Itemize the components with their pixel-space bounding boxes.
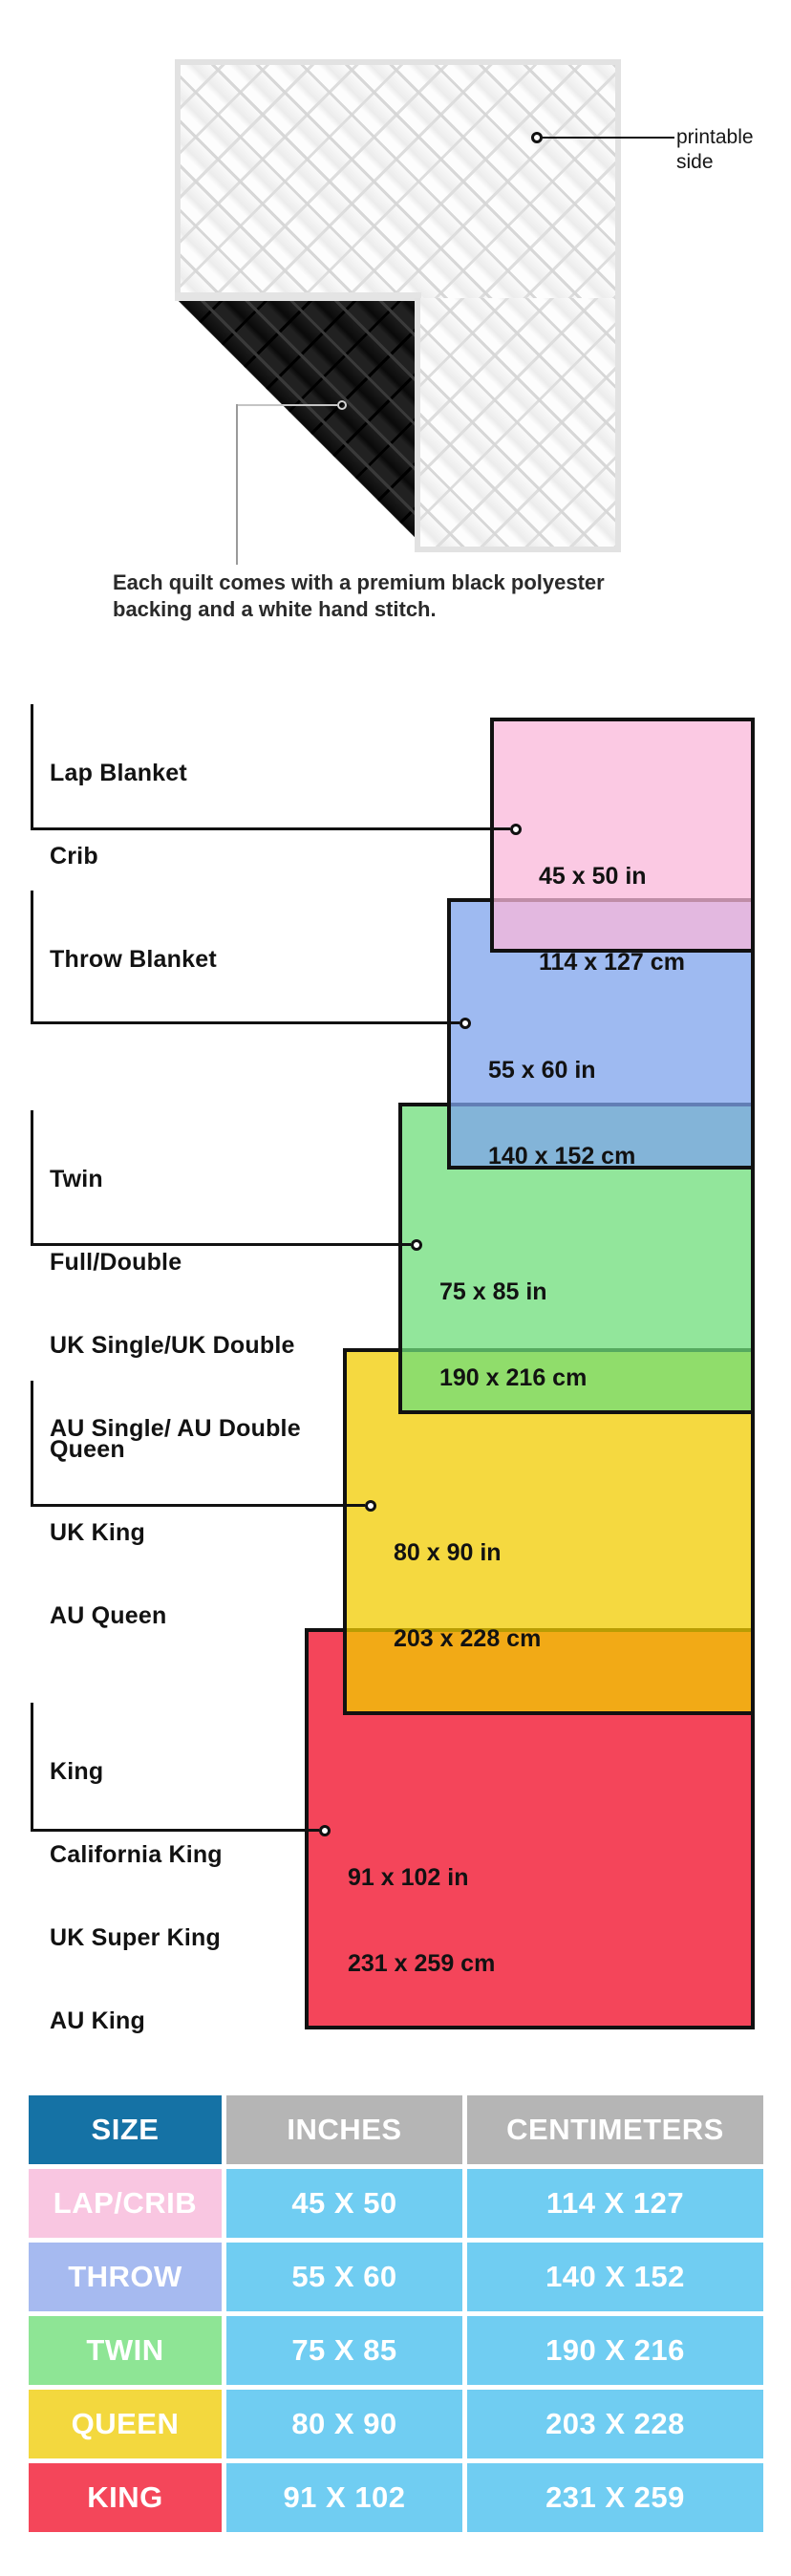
label-queen-line3: AU Queen bbox=[50, 1602, 166, 1630]
dims-king-cm: 231 x 259 cm bbox=[348, 1949, 495, 1978]
table-row-label: QUEEN bbox=[29, 2390, 222, 2458]
quilt-front-top bbox=[175, 59, 621, 298]
dims-lap-crib-cm: 114 x 127 cm bbox=[539, 948, 685, 977]
label-twin-line3: UK Single/UK Double bbox=[50, 1332, 301, 1360]
callout-line bbox=[31, 827, 510, 830]
callout-dot-icon bbox=[460, 1018, 471, 1029]
label-king-line2: California King bbox=[50, 1841, 223, 1869]
black-backing-leader-line-vertical bbox=[236, 404, 238, 565]
callout-line bbox=[31, 1504, 365, 1507]
dims-king: 91 x 102 in 231 x 259 cm bbox=[348, 1806, 495, 2035]
label-king-line4: AU King bbox=[50, 2007, 223, 2035]
dims-queen: 80 x 90 in 203 x 228 cm bbox=[394, 1481, 541, 1710]
table-row-label: THROW bbox=[29, 2243, 222, 2311]
callout-line bbox=[31, 1021, 460, 1024]
printable-side-marker-icon bbox=[531, 132, 543, 143]
printable-side-label-line2: side bbox=[676, 150, 754, 175]
label-king-line1: King bbox=[50, 1758, 223, 1786]
callout-line bbox=[31, 704, 33, 829]
dims-twin-inches: 75 x 85 in bbox=[439, 1277, 587, 1306]
callout-line bbox=[31, 1243, 411, 1246]
dims-throw-cm: 140 x 152 cm bbox=[488, 1142, 635, 1170]
callout-line bbox=[31, 891, 33, 1023]
callout-dot-icon bbox=[319, 1825, 331, 1836]
table-cell: 231 X 259 bbox=[467, 2463, 763, 2532]
quilt-front-bottom bbox=[415, 298, 621, 552]
callout-line bbox=[31, 1110, 33, 1245]
label-twin-line2: Full/Double bbox=[50, 1249, 301, 1277]
printable-side-label: printable side bbox=[676, 125, 754, 175]
callout-dot-icon bbox=[411, 1239, 422, 1251]
table-cell: 203 X 228 bbox=[467, 2390, 763, 2458]
table-cell: 91 X 102 bbox=[226, 2463, 462, 2532]
dims-twin-cm: 190 x 216 cm bbox=[439, 1363, 587, 1392]
callout-line bbox=[31, 1829, 319, 1832]
callout-line bbox=[31, 1703, 33, 1831]
size-table: SIZE INCHES CENTIMETERS LAP/CRIB 45 X 50… bbox=[29, 2095, 763, 2532]
table-cell: 140 X 152 bbox=[467, 2243, 763, 2311]
table-header-inches: INCHES bbox=[226, 2095, 462, 2164]
label-queen: Queen UK King AU Queen bbox=[50, 1381, 166, 1685]
label-queen-line2: UK King bbox=[50, 1519, 166, 1547]
quilt-caption-line2: backing and a white hand stitch. bbox=[113, 596, 605, 623]
printable-side-label-line1: printable bbox=[676, 125, 754, 150]
table-cell: 55 X 60 bbox=[226, 2243, 462, 2311]
table-row-label: KING bbox=[29, 2463, 222, 2532]
label-throw-line1: Throw Blanket bbox=[50, 946, 217, 974]
table-header-size: SIZE bbox=[29, 2095, 222, 2164]
label-king-line3: UK Super King bbox=[50, 1924, 223, 1952]
label-twin-line1: Twin bbox=[50, 1166, 301, 1193]
callout-line bbox=[31, 1381, 33, 1506]
table-row-label: TWIN bbox=[29, 2316, 222, 2385]
dims-queen-inches: 80 x 90 in bbox=[394, 1538, 541, 1567]
quilt-size-chart-infographic: printable side Each quilt comes with a p… bbox=[0, 0, 791, 2576]
dims-twin: 75 x 85 in 190 x 216 cm bbox=[439, 1220, 587, 1449]
label-queen-line1: Queen bbox=[50, 1436, 166, 1464]
quilt-black-backing-fold bbox=[179, 301, 420, 543]
label-throw: Throw Blanket bbox=[50, 891, 217, 1029]
table-row-label: LAP/CRIB bbox=[29, 2169, 222, 2238]
quilt-fold-binding bbox=[175, 292, 421, 301]
label-lap-crib-line1: Lap Blanket bbox=[50, 760, 187, 787]
table-cell: 80 X 90 bbox=[226, 2390, 462, 2458]
table-header-centimeters: CENTIMETERS bbox=[467, 2095, 763, 2164]
dims-queen-cm: 203 x 228 cm bbox=[394, 1624, 541, 1653]
dims-throw: 55 x 60 in 140 x 152 cm bbox=[488, 998, 635, 1228]
dims-king-inches: 91 x 102 in bbox=[348, 1863, 495, 1892]
callout-dot-icon bbox=[365, 1500, 376, 1512]
dims-lap-crib-inches: 45 x 50 in bbox=[539, 862, 685, 891]
dims-throw-inches: 55 x 60 in bbox=[488, 1056, 635, 1084]
black-backing-leader-line bbox=[237, 404, 337, 406]
printable-side-leader-line bbox=[543, 137, 674, 139]
table-cell: 190 X 216 bbox=[467, 2316, 763, 2385]
quilt-caption-line1: Each quilt comes with a premium black po… bbox=[113, 569, 605, 596]
quilt-caption: Each quilt comes with a premium black po… bbox=[113, 569, 605, 623]
label-lap-crib-line2: Crib bbox=[50, 843, 187, 870]
table-cell: 45 X 50 bbox=[226, 2169, 462, 2238]
table-cell: 75 X 85 bbox=[226, 2316, 462, 2385]
callout-dot-icon bbox=[510, 824, 522, 835]
label-king: King California King UK Super King AU Ki… bbox=[50, 1703, 223, 2091]
black-backing-marker-icon bbox=[337, 400, 347, 410]
table-cell: 114 X 127 bbox=[467, 2169, 763, 2238]
